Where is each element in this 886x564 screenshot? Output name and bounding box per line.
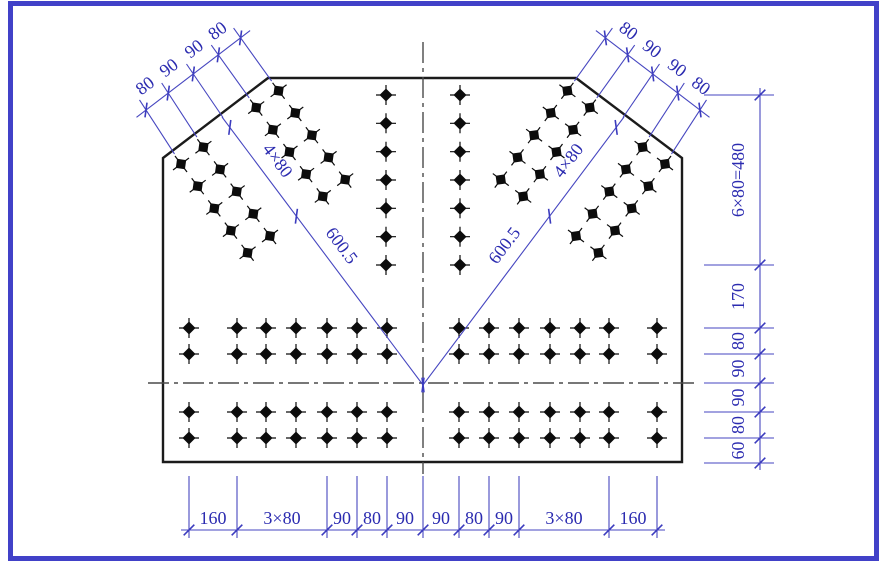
bolt-symbol bbox=[317, 428, 337, 448]
bolt-diamond bbox=[260, 348, 273, 361]
bolt-diamond bbox=[319, 148, 337, 166]
bolt-symbol bbox=[647, 344, 667, 364]
bolt-symbol bbox=[562, 222, 590, 250]
bolt-diamond bbox=[454, 89, 467, 102]
bolt-diamond bbox=[228, 182, 246, 200]
bolt-symbol bbox=[298, 121, 326, 149]
bolt-symbol bbox=[376, 227, 396, 247]
bolt-diamond bbox=[261, 227, 279, 245]
tick-mark bbox=[229, 120, 231, 135]
bolt-diamond bbox=[286, 104, 304, 122]
bolt-diamond bbox=[264, 121, 282, 139]
bolt-symbol bbox=[256, 344, 276, 364]
bottom-chain-label: 90 bbox=[333, 508, 351, 528]
bolt-symbol bbox=[227, 344, 247, 364]
extension-line bbox=[162, 83, 197, 137]
bolt-symbol bbox=[540, 402, 560, 422]
bolt-diamond bbox=[260, 406, 273, 419]
bolt-symbol bbox=[584, 239, 612, 267]
bolt-diamond bbox=[525, 126, 543, 144]
top-right-chain-label: 80 bbox=[615, 17, 641, 44]
right-brace-distance-label: 600.5 bbox=[484, 223, 524, 267]
bolt-symbol bbox=[570, 344, 590, 364]
right-chain-label: 6×80=480 bbox=[728, 143, 748, 217]
bolt-symbol bbox=[579, 200, 607, 228]
bolt-diamond bbox=[514, 187, 532, 205]
bolt-symbol bbox=[227, 318, 247, 338]
bolt-symbol bbox=[256, 318, 276, 338]
bolt-symbol bbox=[479, 428, 499, 448]
bolt-symbol bbox=[450, 113, 470, 133]
bolt-diamond bbox=[269, 82, 287, 100]
bolt-symbol bbox=[599, 318, 619, 338]
bolt-diamond bbox=[574, 432, 587, 445]
bolt-symbol bbox=[179, 402, 199, 422]
bolt-symbol bbox=[376, 85, 396, 105]
bolt-symbol bbox=[599, 402, 619, 422]
bolt-symbol bbox=[256, 222, 284, 250]
bolt-diamond bbox=[651, 348, 664, 361]
bottom-chain-label: 160 bbox=[200, 508, 227, 528]
bolt-symbol bbox=[377, 428, 397, 448]
bolt-symbol bbox=[450, 227, 470, 247]
bolt-symbol bbox=[520, 121, 548, 149]
bolt-diamond bbox=[454, 259, 467, 272]
top-left-chain-label: 80 bbox=[204, 17, 230, 44]
bolt-diamond bbox=[381, 322, 394, 335]
bolt-diamond bbox=[544, 432, 557, 445]
bolt-diamond bbox=[483, 322, 496, 335]
bolt-diamond bbox=[380, 202, 393, 215]
bolt-symbol bbox=[634, 172, 662, 200]
bolt-diamond bbox=[453, 432, 466, 445]
bottom-chain-label: 3×80 bbox=[545, 508, 582, 528]
bolt-diamond bbox=[492, 170, 510, 188]
bolt-symbol bbox=[286, 428, 306, 448]
bolt-diamond bbox=[380, 145, 393, 158]
bolt-symbol bbox=[167, 150, 195, 178]
left-brace-pitch-label: 4×80 bbox=[259, 140, 297, 182]
bolt-symbol bbox=[509, 318, 529, 338]
bolt-symbol bbox=[449, 428, 469, 448]
bolt-symbol bbox=[179, 428, 199, 448]
bolt-diamond bbox=[454, 174, 467, 187]
bolt-diamond bbox=[656, 155, 674, 173]
bolt-diamond bbox=[651, 432, 664, 445]
bolt-symbol bbox=[239, 200, 267, 228]
bolt-symbol bbox=[601, 217, 629, 245]
tick-mark bbox=[615, 120, 617, 135]
bolt-symbol bbox=[479, 402, 499, 422]
bolt-diamond bbox=[183, 432, 196, 445]
extension-line bbox=[597, 45, 635, 98]
bolt-diamond bbox=[290, 432, 303, 445]
bolt-symbol bbox=[509, 428, 529, 448]
bottom-chain-label: 3×80 bbox=[263, 508, 300, 528]
bolt-diamond bbox=[454, 230, 467, 243]
bolt-symbol bbox=[242, 94, 270, 122]
bolt-symbol bbox=[540, 428, 560, 448]
bolt-symbol bbox=[570, 402, 590, 422]
bolt-diamond bbox=[380, 117, 393, 130]
bolt-diamond bbox=[544, 348, 557, 361]
extension-line bbox=[140, 100, 175, 154]
bolt-diamond bbox=[633, 138, 651, 156]
bolt-diamond bbox=[231, 406, 244, 419]
bolt-diamond bbox=[381, 432, 394, 445]
bottom-chain-label: 90 bbox=[396, 508, 414, 528]
extension-line bbox=[672, 100, 707, 154]
bolt-symbol bbox=[377, 402, 397, 422]
bottom-chain-label: 90 bbox=[495, 508, 513, 528]
bolt-diamond bbox=[603, 432, 616, 445]
bolt-diamond bbox=[205, 199, 223, 217]
bolt-diamond bbox=[589, 244, 607, 262]
bolt-symbol bbox=[647, 318, 667, 338]
bolt-diamond bbox=[183, 322, 196, 335]
bolt-diamond bbox=[454, 145, 467, 158]
bolt-diamond bbox=[381, 406, 394, 419]
bolt-symbol bbox=[450, 85, 470, 105]
right-chain-label: 90 bbox=[728, 360, 748, 378]
bolt-symbol bbox=[347, 402, 367, 422]
bolt-diamond bbox=[351, 432, 364, 445]
bolt-diamond bbox=[260, 432, 273, 445]
bolt-symbol bbox=[376, 198, 396, 218]
bolt-symbol bbox=[227, 402, 247, 422]
bolt-diamond bbox=[380, 89, 393, 102]
bolt-diamond bbox=[651, 406, 664, 419]
bolt-diamond bbox=[247, 98, 265, 116]
bolt-symbol bbox=[315, 143, 343, 171]
bolt-diamond bbox=[380, 174, 393, 187]
bolt-symbol bbox=[347, 428, 367, 448]
bolt-symbol bbox=[570, 318, 590, 338]
bolt-diamond bbox=[303, 126, 321, 144]
bolt-symbol bbox=[450, 198, 470, 218]
bolt-diamond bbox=[172, 155, 190, 173]
tick-mark bbox=[295, 209, 297, 224]
bolt-symbol bbox=[509, 344, 529, 364]
bolt-symbol bbox=[647, 402, 667, 422]
bolt-symbol bbox=[647, 428, 667, 448]
bolt-diamond bbox=[574, 406, 587, 419]
bolt-diamond bbox=[351, 348, 364, 361]
bolt-symbol bbox=[317, 344, 337, 364]
bolt-symbol bbox=[540, 344, 560, 364]
bolt-diamond bbox=[623, 199, 641, 217]
bolt-symbol bbox=[449, 402, 469, 422]
bolt-diamond bbox=[606, 221, 624, 239]
extension-line bbox=[234, 28, 272, 81]
bolt-symbol bbox=[347, 318, 367, 338]
bolt-diamond bbox=[508, 148, 526, 166]
bolt-diamond bbox=[574, 348, 587, 361]
bolt-symbol bbox=[450, 255, 470, 275]
bolt-diamond bbox=[453, 322, 466, 335]
gusset-plate-drawing: 4×80600.54×80600.580809090909080806×80=4… bbox=[0, 0, 886, 564]
bolt-symbol bbox=[376, 113, 396, 133]
bolt-symbol bbox=[599, 428, 619, 448]
bolt-diamond bbox=[513, 322, 526, 335]
bolt-diamond bbox=[564, 121, 582, 139]
right-brace-pitch-label: 4×80 bbox=[549, 140, 587, 182]
bolt-symbol bbox=[618, 194, 646, 222]
bolt-symbol bbox=[526, 160, 554, 188]
extension-line bbox=[187, 64, 224, 118]
bolt-diamond bbox=[321, 322, 334, 335]
bolt-diamond bbox=[321, 348, 334, 361]
bolt-diamond bbox=[651, 322, 664, 335]
bolt-diamond bbox=[183, 406, 196, 419]
bolt-symbol bbox=[629, 133, 657, 161]
extension-line bbox=[623, 64, 660, 118]
bolt-symbol bbox=[595, 178, 623, 206]
bolt-symbol bbox=[179, 318, 199, 338]
bolt-symbol bbox=[559, 116, 587, 144]
top-left-chain-label: 80 bbox=[132, 72, 158, 99]
bolt-diamond bbox=[617, 160, 635, 178]
bolt-diamond bbox=[567, 227, 585, 245]
right-chain-label: 60 bbox=[728, 442, 748, 460]
bolt-symbol bbox=[570, 428, 590, 448]
extension-line bbox=[649, 83, 684, 137]
bolt-symbol bbox=[376, 255, 396, 275]
bolt-diamond bbox=[290, 348, 303, 361]
bolt-symbol bbox=[200, 194, 228, 222]
bolt-diamond bbox=[558, 82, 576, 100]
bolt-symbol bbox=[286, 402, 306, 422]
bottom-chain-label: 80 bbox=[363, 508, 381, 528]
bolt-symbol bbox=[217, 217, 245, 245]
top-left-chain-label: 90 bbox=[155, 54, 181, 81]
top-right-chain-label: 90 bbox=[639, 35, 665, 62]
bolt-symbol bbox=[309, 182, 337, 210]
bolt-diamond bbox=[290, 406, 303, 419]
bolt-diamond bbox=[244, 205, 262, 223]
bolt-diamond bbox=[238, 244, 256, 262]
bolt-symbol bbox=[553, 77, 581, 105]
bolt-symbol bbox=[256, 402, 276, 422]
bolt-diamond bbox=[454, 117, 467, 130]
bolt-diamond bbox=[231, 322, 244, 335]
bolt-symbol bbox=[347, 344, 367, 364]
left-brace-distance-label: 600.5 bbox=[322, 223, 362, 267]
bolt-diamond bbox=[454, 202, 467, 215]
bolt-diamond bbox=[380, 230, 393, 243]
bolt-diamond bbox=[351, 322, 364, 335]
bolt-diamond bbox=[583, 205, 601, 223]
bolt-diamond bbox=[194, 138, 212, 156]
bolt-diamond bbox=[513, 406, 526, 419]
bolt-symbol bbox=[286, 318, 306, 338]
bolt-symbol bbox=[331, 166, 359, 194]
bolt-diamond bbox=[260, 322, 273, 335]
bottom-chain-label: 80 bbox=[465, 508, 483, 528]
bolt-diamond bbox=[380, 259, 393, 272]
bolt-diamond bbox=[336, 170, 354, 188]
bolt-symbol bbox=[479, 318, 499, 338]
bolt-symbol bbox=[450, 170, 470, 190]
bolt-diamond bbox=[231, 348, 244, 361]
tick-mark bbox=[549, 209, 551, 224]
bolt-symbol bbox=[376, 170, 396, 190]
bolt-symbol bbox=[179, 344, 199, 364]
bolt-diamond bbox=[314, 187, 332, 205]
right-chain-label: 80 bbox=[728, 416, 748, 434]
bolt-diamond bbox=[290, 322, 303, 335]
extension-line bbox=[574, 28, 612, 81]
bolt-diamond bbox=[574, 322, 587, 335]
bolt-diamond bbox=[381, 348, 394, 361]
bolt-diamond bbox=[483, 432, 496, 445]
bolt-diamond bbox=[297, 165, 315, 183]
bottom-chain-label: 160 bbox=[620, 508, 647, 528]
bolt-diamond bbox=[639, 177, 657, 195]
bolt-diamond bbox=[211, 160, 229, 178]
bolt-symbol bbox=[576, 94, 604, 122]
bolt-diamond bbox=[603, 348, 616, 361]
bolt-diamond bbox=[513, 348, 526, 361]
bolt-diamond bbox=[603, 406, 616, 419]
right-chain-label: 90 bbox=[728, 389, 748, 407]
bolt-symbol bbox=[256, 428, 276, 448]
bolt-symbol bbox=[206, 155, 234, 183]
drawing-page: { "drawing": { "kind": "structural gusse… bbox=[0, 0, 886, 564]
top-left-chain-label: 90 bbox=[181, 35, 207, 62]
bolt-symbol bbox=[509, 182, 537, 210]
bolt-diamond bbox=[600, 182, 618, 200]
bolt-diamond bbox=[321, 432, 334, 445]
bolt-diamond bbox=[222, 221, 240, 239]
right-chain-label: 170 bbox=[728, 283, 748, 310]
bolt-symbol bbox=[537, 99, 565, 127]
bolt-diamond bbox=[453, 348, 466, 361]
bolt-symbol bbox=[234, 239, 262, 267]
bolt-symbol bbox=[479, 344, 499, 364]
bolt-symbol bbox=[612, 155, 640, 183]
bolt-symbol bbox=[189, 133, 217, 161]
bolt-diamond bbox=[453, 406, 466, 419]
bolt-symbol bbox=[223, 178, 251, 206]
bolt-diamond bbox=[231, 432, 244, 445]
bolt-symbol bbox=[292, 160, 320, 188]
bottom-chain-label: 90 bbox=[432, 508, 450, 528]
bolt-diamond bbox=[581, 98, 599, 116]
bolt-diamond bbox=[603, 322, 616, 335]
bolt-diamond bbox=[351, 406, 364, 419]
bolt-diamond bbox=[544, 406, 557, 419]
bolt-diamond bbox=[321, 406, 334, 419]
bolt-diamond bbox=[544, 322, 557, 335]
bolt-diamond bbox=[531, 165, 549, 183]
top-right-chain-label: 90 bbox=[664, 54, 690, 81]
bolt-symbol bbox=[281, 99, 309, 127]
bolt-symbol bbox=[651, 150, 679, 178]
bolt-symbol bbox=[317, 318, 337, 338]
bolt-symbol bbox=[376, 142, 396, 162]
right-chain-label: 80 bbox=[728, 332, 748, 350]
bolt-symbol bbox=[540, 318, 560, 338]
bolt-symbol bbox=[265, 77, 293, 105]
bolt-symbol bbox=[503, 143, 531, 171]
bolt-diamond bbox=[189, 177, 207, 195]
bolt-diamond bbox=[483, 348, 496, 361]
bolt-symbol bbox=[227, 428, 247, 448]
bolt-diamond bbox=[542, 104, 560, 122]
bolt-diamond bbox=[483, 406, 496, 419]
bolt-symbol bbox=[317, 402, 337, 422]
bolt-diamond bbox=[183, 348, 196, 361]
bolt-symbol bbox=[286, 344, 306, 364]
bolt-symbol bbox=[184, 172, 212, 200]
bolt-symbol bbox=[450, 142, 470, 162]
bolt-symbol bbox=[487, 166, 515, 194]
bolt-symbol bbox=[509, 402, 529, 422]
extension-line bbox=[211, 45, 249, 98]
bolt-diamond bbox=[513, 432, 526, 445]
bolt-symbol bbox=[599, 344, 619, 364]
